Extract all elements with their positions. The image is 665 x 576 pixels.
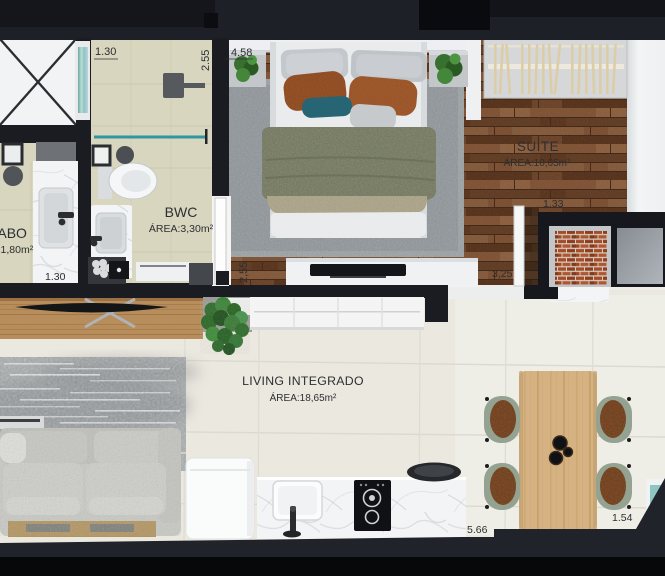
svg-text:2,55: 2,55 xyxy=(238,262,250,283)
svg-text:2.55: 2.55 xyxy=(200,50,212,71)
svg-text:ÁREA:18,65m²: ÁREA:18,65m² xyxy=(270,391,337,404)
svg-text:ÁREA:10,65m²: ÁREA:10,65m² xyxy=(504,156,571,169)
svg-text:3,25: 3,25 xyxy=(492,268,513,280)
svg-text:1.30: 1.30 xyxy=(45,271,66,283)
svg-text:4.58: 4.58 xyxy=(231,47,252,59)
svg-text:ÁREA:3,30m²: ÁREA:3,30m² xyxy=(149,222,214,235)
svg-text:1.33: 1.33 xyxy=(543,198,564,210)
svg-text:1.30: 1.30 xyxy=(95,46,116,58)
svg-text:SUITE: SUITE xyxy=(517,139,559,154)
svg-text:LAVABO: LAVABO xyxy=(0,225,27,241)
svg-text:1.54: 1.54 xyxy=(612,512,633,524)
svg-text:LIVING INTEGRADO: LIVING INTEGRADO xyxy=(242,374,364,388)
svg-text:5.66: 5.66 xyxy=(467,524,488,536)
svg-text:BWC: BWC xyxy=(165,204,198,220)
svg-text:ÁREA:1,80m²: ÁREA:1,80m² xyxy=(0,243,34,256)
